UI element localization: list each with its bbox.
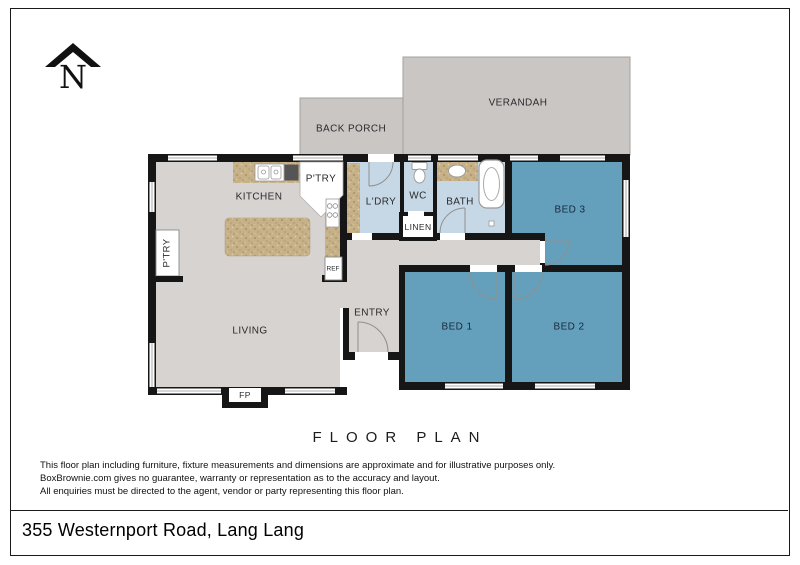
bed2-label: BED 2 bbox=[554, 322, 585, 333]
stove bbox=[285, 165, 299, 181]
disclaimer-text: This floor plan including furniture, fix… bbox=[40, 459, 555, 498]
floor-plan-drawing: VERANDAH BACK PORCH KITCHEN P'TRY P'TRY … bbox=[145, 55, 635, 410]
verandah-label: VERANDAH bbox=[489, 98, 548, 109]
address-bar: 355 Westernport Road, Lang Lang bbox=[10, 510, 788, 555]
disclaimer-line-3: All enquiries must be directed to the ag… bbox=[40, 485, 555, 498]
left-pantry-label: P'TRY bbox=[162, 239, 173, 268]
bed1-label: BED 1 bbox=[442, 322, 473, 333]
compass-north-letter: N bbox=[44, 58, 102, 96]
living-label: LIVING bbox=[232, 326, 267, 337]
laundry-label: L'DRY bbox=[366, 197, 396, 208]
bath-label: BATH bbox=[446, 197, 474, 208]
wc-label: WC bbox=[409, 191, 426, 202]
toilet bbox=[412, 163, 427, 170]
back-porch-label: BACK PORCH bbox=[316, 124, 386, 135]
linen-label: LINEN bbox=[404, 222, 431, 232]
corner-pantry-label: P'TRY bbox=[306, 174, 336, 185]
floorplan-graphic bbox=[145, 55, 635, 410]
hallway-floor bbox=[347, 240, 545, 265]
north-compass: N bbox=[44, 40, 102, 96]
vanity-basin bbox=[449, 165, 466, 177]
fireplace-label: FP bbox=[239, 390, 251, 400]
fridge-label: REF bbox=[327, 266, 340, 273]
floor-plan-title: FLOOR PLAN bbox=[0, 429, 800, 446]
bed3-label: BED 3 bbox=[555, 205, 586, 216]
disclaimer-line-1: This floor plan including furniture, fix… bbox=[40, 459, 555, 472]
entry-label: ENTRY bbox=[354, 308, 390, 319]
kitchen-island bbox=[225, 218, 310, 256]
disclaimer-line-2: BoxBrownie.com gives no guarantee, warra… bbox=[40, 472, 555, 485]
property-address: 355 Westernport Road, Lang Lang bbox=[22, 520, 304, 541]
laundry-bench bbox=[347, 163, 360, 233]
floor-plan-page: N bbox=[0, 0, 800, 565]
shower-drain bbox=[489, 221, 494, 226]
kitchen-label: KITCHEN bbox=[236, 192, 283, 203]
outdoor-areas bbox=[300, 57, 630, 155]
